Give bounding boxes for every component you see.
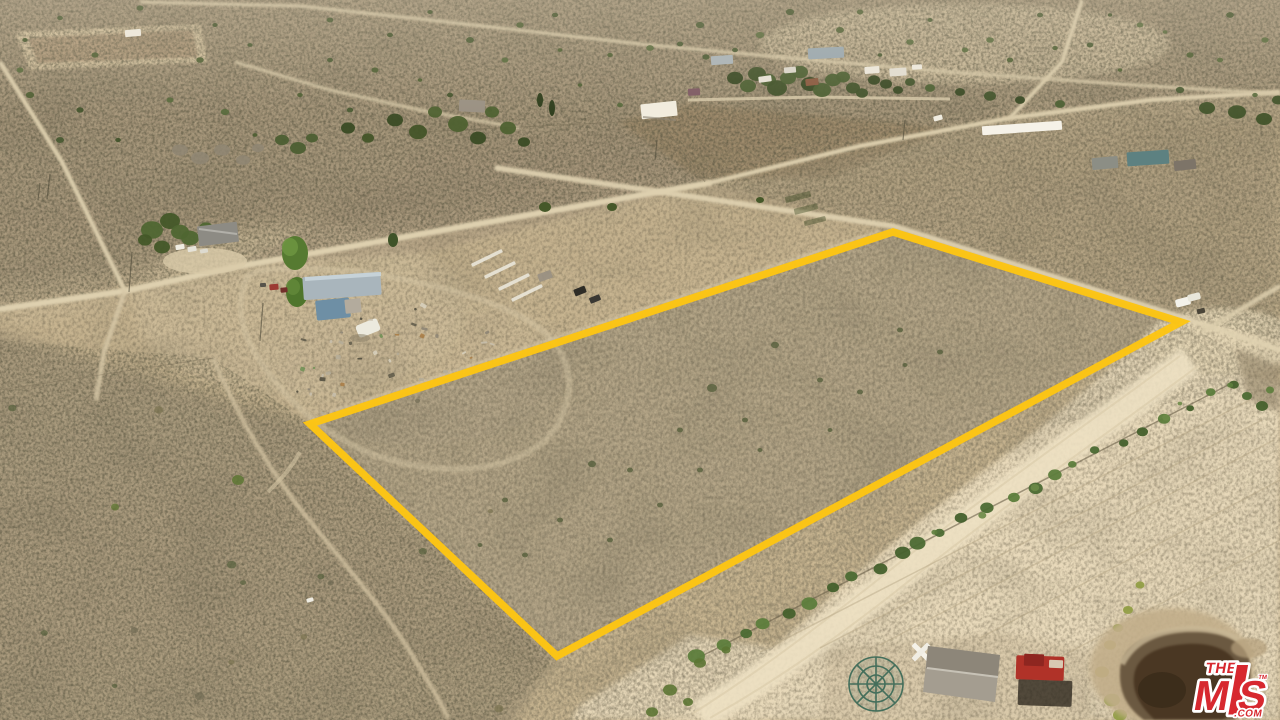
svg-text:TM: TM [1258, 675, 1268, 681]
svg-text:.COM: .COM [1233, 709, 1263, 720]
